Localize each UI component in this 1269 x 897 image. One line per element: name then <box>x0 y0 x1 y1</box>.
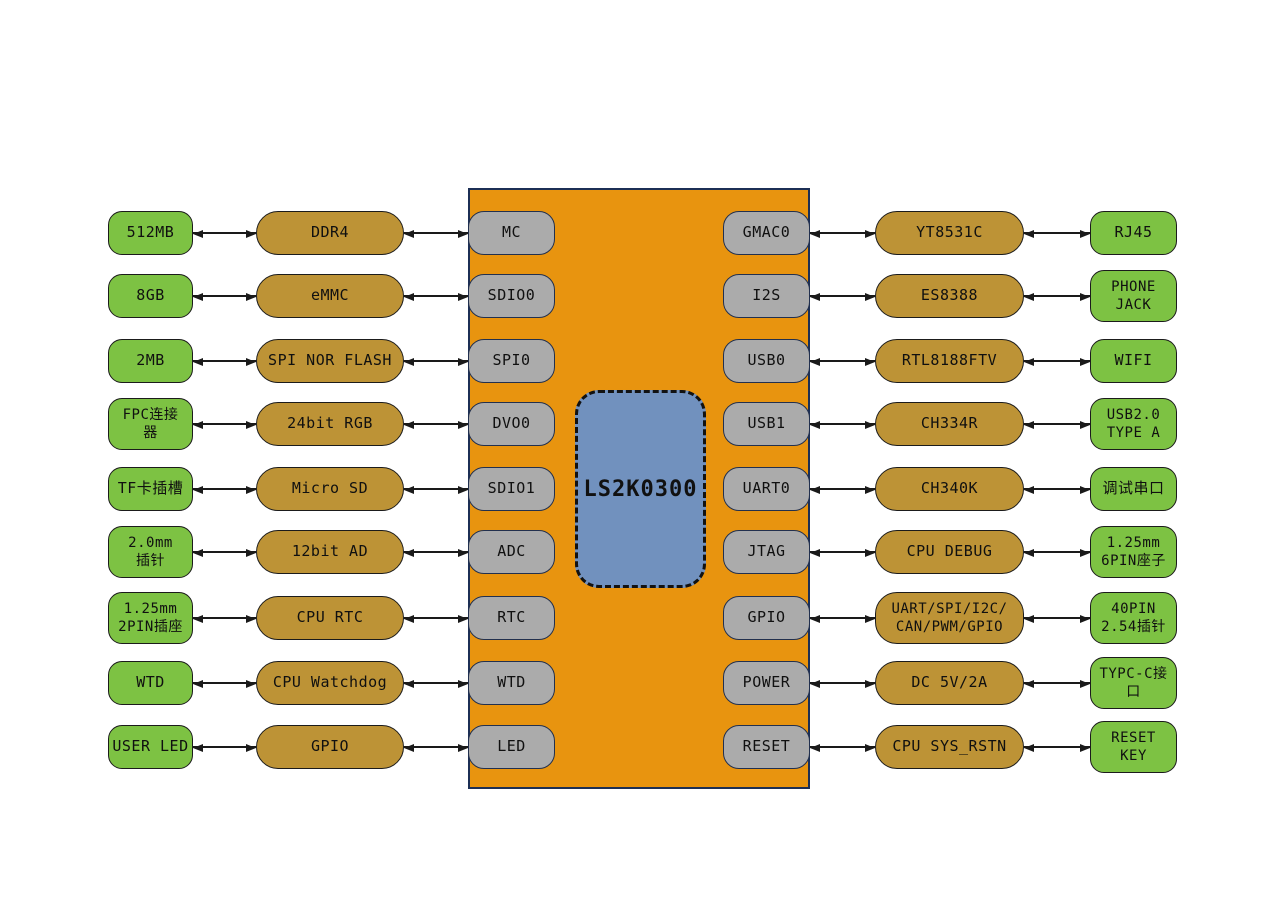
soc-port-pill-port-left-row8: WTD <box>468 661 555 705</box>
bidirectional-arrow <box>1024 295 1090 297</box>
connector-box-outer-left-row2: 8GB <box>108 274 193 318</box>
bidirectional-arrow <box>810 423 875 425</box>
soc-port-pill-port-left-row7: RTC <box>468 596 555 640</box>
module-box-module-left-row4: 24bit RGB <box>256 402 404 446</box>
module-box-module-right-row5: CH340K <box>875 467 1024 511</box>
bidirectional-arrow <box>193 682 256 684</box>
soc-port-pill-port-right-row7: GPIO <box>723 596 810 640</box>
bidirectional-arrow <box>193 232 256 234</box>
module-box-module-right-row3: RTL8188FTV <box>875 339 1024 383</box>
soc-port-pill-port-right-row9: RESET <box>723 725 810 769</box>
connector-box-outer-left-row1: 512MB <box>108 211 193 255</box>
bidirectional-arrow <box>193 423 256 425</box>
connector-box-outer-left-row5: TF卡插槽 <box>108 467 193 511</box>
bidirectional-arrow <box>404 295 468 297</box>
soc-port-pill-port-right-row5: UART0 <box>723 467 810 511</box>
module-box-module-left-row5: Micro SD <box>256 467 404 511</box>
connector-box-outer-left-row4: FPC连接 器 <box>108 398 193 450</box>
module-box-module-right-row9: CPU SYS_RSTN <box>875 725 1024 769</box>
connector-box-outer-right-row1: RJ45 <box>1090 211 1177 255</box>
soc-port-pill-port-left-row1: MC <box>468 211 555 255</box>
bidirectional-arrow <box>193 617 256 619</box>
bidirectional-arrow <box>1024 423 1090 425</box>
bidirectional-arrow <box>810 295 875 297</box>
module-box-module-left-row2: eMMC <box>256 274 404 318</box>
module-box-module-left-row9: GPIO <box>256 725 404 769</box>
soc-port-pill-port-right-row3: USB0 <box>723 339 810 383</box>
bidirectional-arrow <box>1024 488 1090 490</box>
soc-port-pill-port-left-row9: LED <box>468 725 555 769</box>
bidirectional-arrow <box>810 360 875 362</box>
connector-box-outer-right-row2: PHONE JACK <box>1090 270 1177 322</box>
bidirectional-arrow <box>1024 682 1090 684</box>
bidirectional-arrow <box>810 551 875 553</box>
module-box-module-left-row1: DDR4 <box>256 211 404 255</box>
bidirectional-arrow <box>404 617 468 619</box>
bidirectional-arrow <box>404 551 468 553</box>
soc-chip-label: LS2K0300 <box>575 390 706 588</box>
bidirectional-arrow <box>1024 360 1090 362</box>
connector-box-outer-right-row9: RESET KEY <box>1090 721 1177 773</box>
module-box-module-right-row6: CPU DEBUG <box>875 530 1024 574</box>
connector-box-outer-right-row4: USB2.0 TYPE A <box>1090 398 1177 450</box>
soc-port-pill-port-left-row4: DVO0 <box>468 402 555 446</box>
soc-port-pill-port-right-row1: GMAC0 <box>723 211 810 255</box>
module-box-module-left-row8: CPU Watchdog <box>256 661 404 705</box>
soc-port-pill-port-left-row6: ADC <box>468 530 555 574</box>
bidirectional-arrow <box>1024 617 1090 619</box>
connector-box-outer-right-row5: 调试串口 <box>1090 467 1177 511</box>
bidirectional-arrow <box>193 488 256 490</box>
soc-port-pill-port-left-row2: SDIO0 <box>468 274 555 318</box>
bidirectional-arrow <box>404 682 468 684</box>
module-box-module-left-row7: CPU RTC <box>256 596 404 640</box>
connector-box-outer-left-row9: USER LED <box>108 725 193 769</box>
module-box-module-left-row3: SPI NOR FLASH <box>256 339 404 383</box>
connector-box-outer-left-row8: WTD <box>108 661 193 705</box>
connector-box-outer-left-row7: 1.25mm 2PIN插座 <box>108 592 193 644</box>
bidirectional-arrow <box>1024 232 1090 234</box>
bidirectional-arrow <box>810 746 875 748</box>
bidirectional-arrow <box>404 746 468 748</box>
module-box-module-left-row6: 12bit AD <box>256 530 404 574</box>
bidirectional-arrow <box>810 682 875 684</box>
bidirectional-arrow <box>810 488 875 490</box>
bidirectional-arrow <box>193 295 256 297</box>
soc-port-pill-port-right-row6: JTAG <box>723 530 810 574</box>
soc-port-pill-port-right-row8: POWER <box>723 661 810 705</box>
connector-box-outer-right-row6: 1.25mm 6PIN座子 <box>1090 526 1177 578</box>
bidirectional-arrow <box>810 617 875 619</box>
connector-box-outer-right-row3: WIFI <box>1090 339 1177 383</box>
bidirectional-arrow <box>404 232 468 234</box>
module-box-module-right-row7: UART/SPI/I2C/ CAN/PWM/GPIO <box>875 592 1024 644</box>
soc-port-pill-port-left-row5: SDIO1 <box>468 467 555 511</box>
connector-box-outer-right-row8: TYPC-C接 口 <box>1090 657 1177 709</box>
soc-port-pill-port-left-row3: SPI0 <box>468 339 555 383</box>
connector-box-outer-left-row3: 2MB <box>108 339 193 383</box>
bidirectional-arrow <box>810 232 875 234</box>
connector-box-outer-right-row7: 40PIN 2.54插针 <box>1090 592 1177 644</box>
soc-port-pill-port-right-row2: I2S <box>723 274 810 318</box>
module-box-module-right-row1: YT8531C <box>875 211 1024 255</box>
bidirectional-arrow <box>404 360 468 362</box>
module-box-module-right-row2: ES8388 <box>875 274 1024 318</box>
bidirectional-arrow <box>193 360 256 362</box>
bidirectional-arrow <box>404 423 468 425</box>
soc-port-pill-port-right-row4: USB1 <box>723 402 810 446</box>
bidirectional-arrow <box>1024 746 1090 748</box>
bidirectional-arrow <box>193 746 256 748</box>
bidirectional-arrow <box>404 488 468 490</box>
bidirectional-arrow <box>193 551 256 553</box>
module-box-module-right-row8: DC 5V/2A <box>875 661 1024 705</box>
block-diagram: LS2K0300 512MBDDR4MCGMAC0YT8531CRJ458GBe… <box>0 0 1269 897</box>
module-box-module-right-row4: CH334R <box>875 402 1024 446</box>
connector-box-outer-left-row6: 2.0mm 插针 <box>108 526 193 578</box>
bidirectional-arrow <box>1024 551 1090 553</box>
